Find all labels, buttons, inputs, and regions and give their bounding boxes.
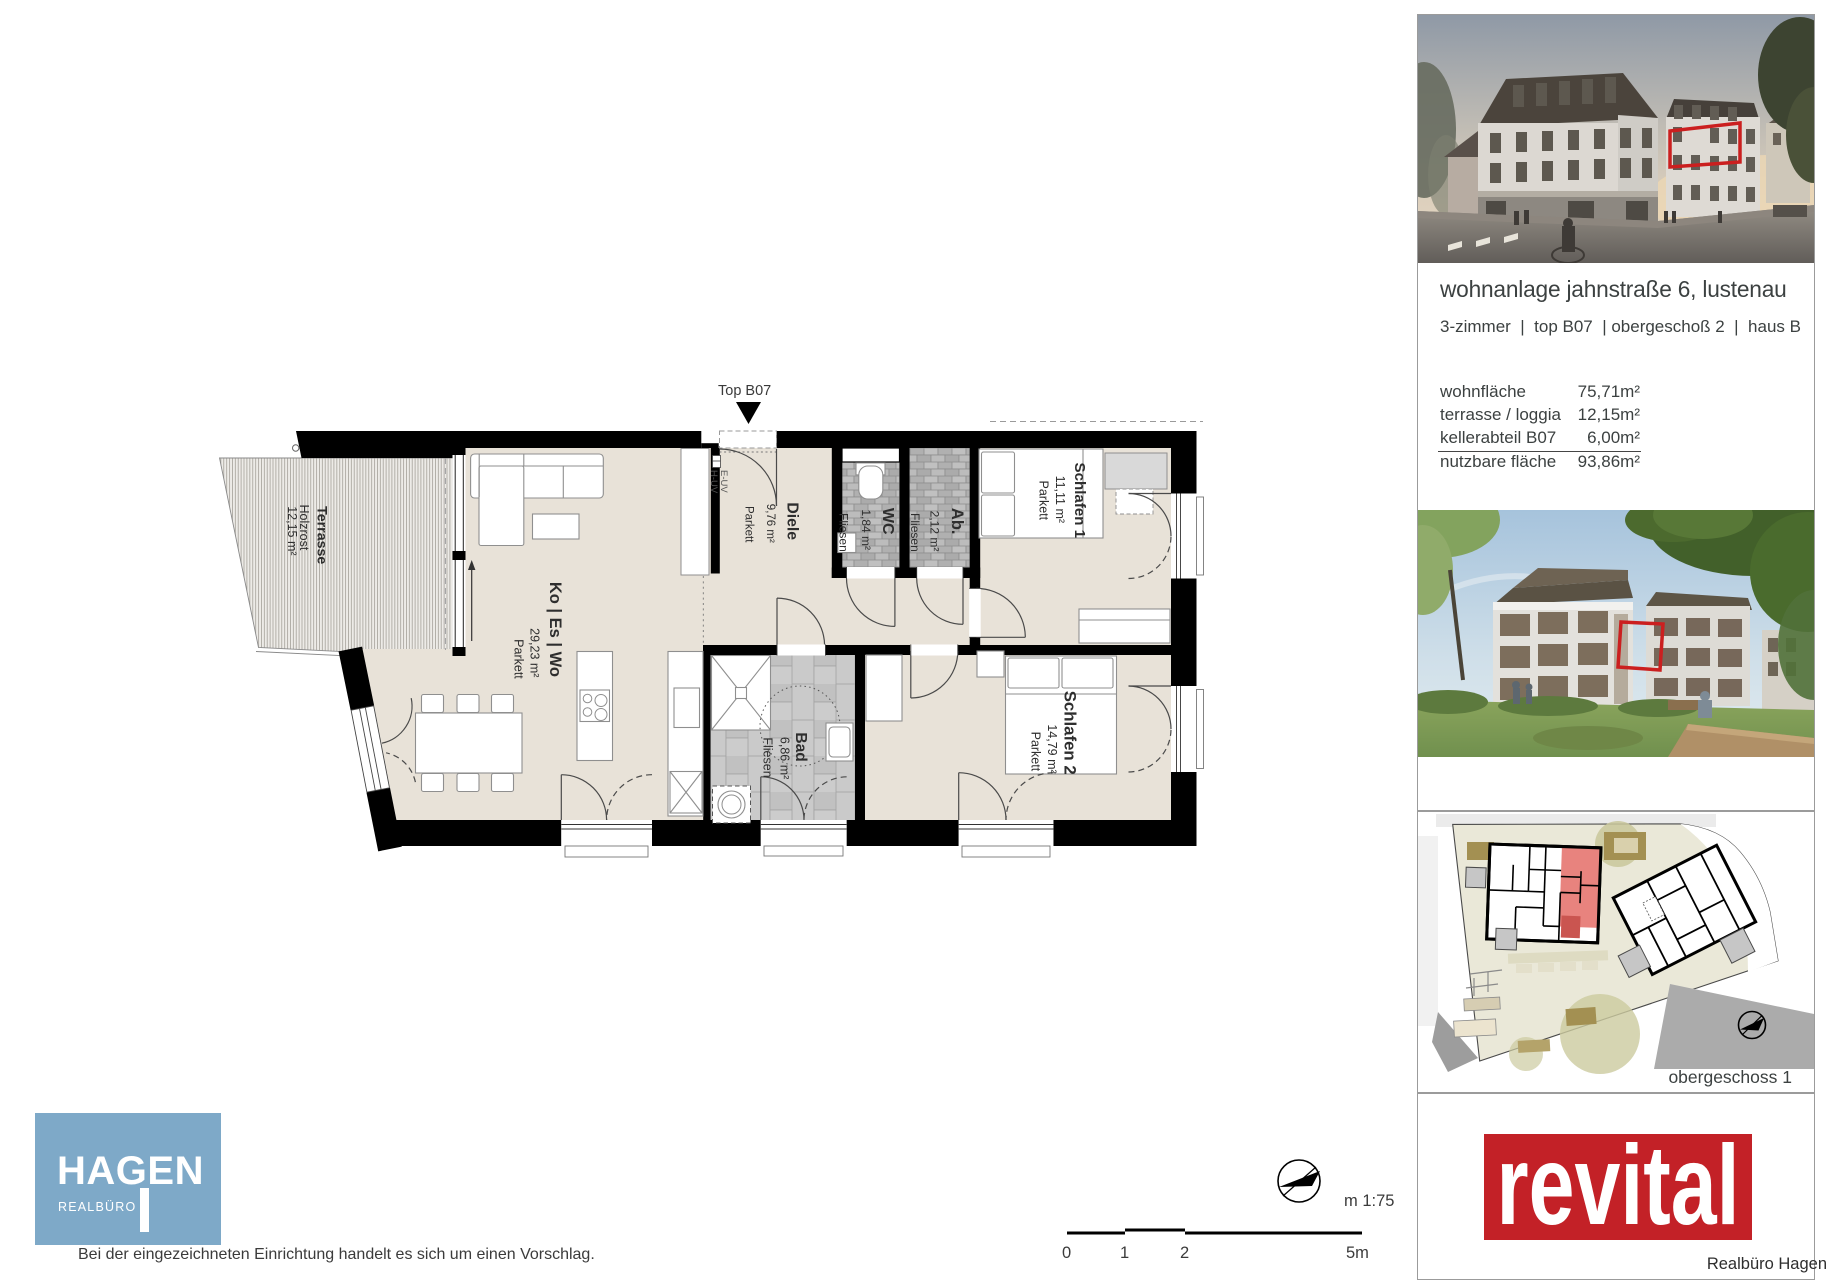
svg-text:14,79 m²: 14,79 m²: [1045, 724, 1059, 773]
svg-text:m 1:75: m 1:75: [1344, 1192, 1394, 1210]
svg-text:Parkett: Parkett: [743, 506, 755, 543]
svg-text:Fliesen: Fliesen: [760, 737, 774, 777]
svg-text:Top B07: Top B07: [718, 383, 771, 399]
svg-text:WC: WC: [879, 508, 896, 535]
svg-text:Fliesen: Fliesen: [836, 513, 850, 552]
svg-text:2: 2: [1180, 1244, 1189, 1262]
svg-text:Fliesen: Fliesen: [908, 513, 922, 552]
svg-text:5m: 5m: [1346, 1244, 1369, 1262]
svg-text:2,12 m²: 2,12 m²: [928, 511, 942, 552]
svg-text:Diele: Diele: [783, 502, 800, 540]
svg-text:Schlafen 2: Schlafen 2: [1061, 691, 1080, 775]
svg-text:9,76 m²: 9,76 m²: [764, 504, 776, 543]
svg-text:11,11 m²: 11,11 m²: [1053, 476, 1067, 523]
svg-text:Terrasse: Terrasse: [314, 506, 330, 564]
svg-text:Parkett: Parkett: [511, 639, 525, 679]
svg-text:12,15 m²: 12,15 m²: [285, 506, 299, 555]
svg-text:Bad: Bad: [792, 732, 809, 761]
svg-text:H-UV: H-UV: [708, 470, 719, 494]
svg-text:Ko | Es | Wo: Ko | Es | Wo: [546, 582, 564, 677]
svg-text:1,84 m²: 1,84 m²: [859, 509, 873, 550]
svg-text:revital: revital: [1497, 1134, 1740, 1240]
svg-text:Schlafen 1: Schlafen 1: [1071, 463, 1088, 539]
svg-text:Parkett: Parkett: [1028, 732, 1042, 772]
svg-text:0: 0: [1062, 1244, 1071, 1262]
svg-text:Ab.: Ab.: [948, 508, 966, 535]
svg-text:29,23 m²: 29,23 m²: [527, 628, 541, 677]
svg-text:Parkett: Parkett: [1037, 480, 1051, 520]
svg-text:1: 1: [1120, 1244, 1129, 1262]
svg-text:6,86 m²: 6,86 m²: [778, 737, 792, 779]
